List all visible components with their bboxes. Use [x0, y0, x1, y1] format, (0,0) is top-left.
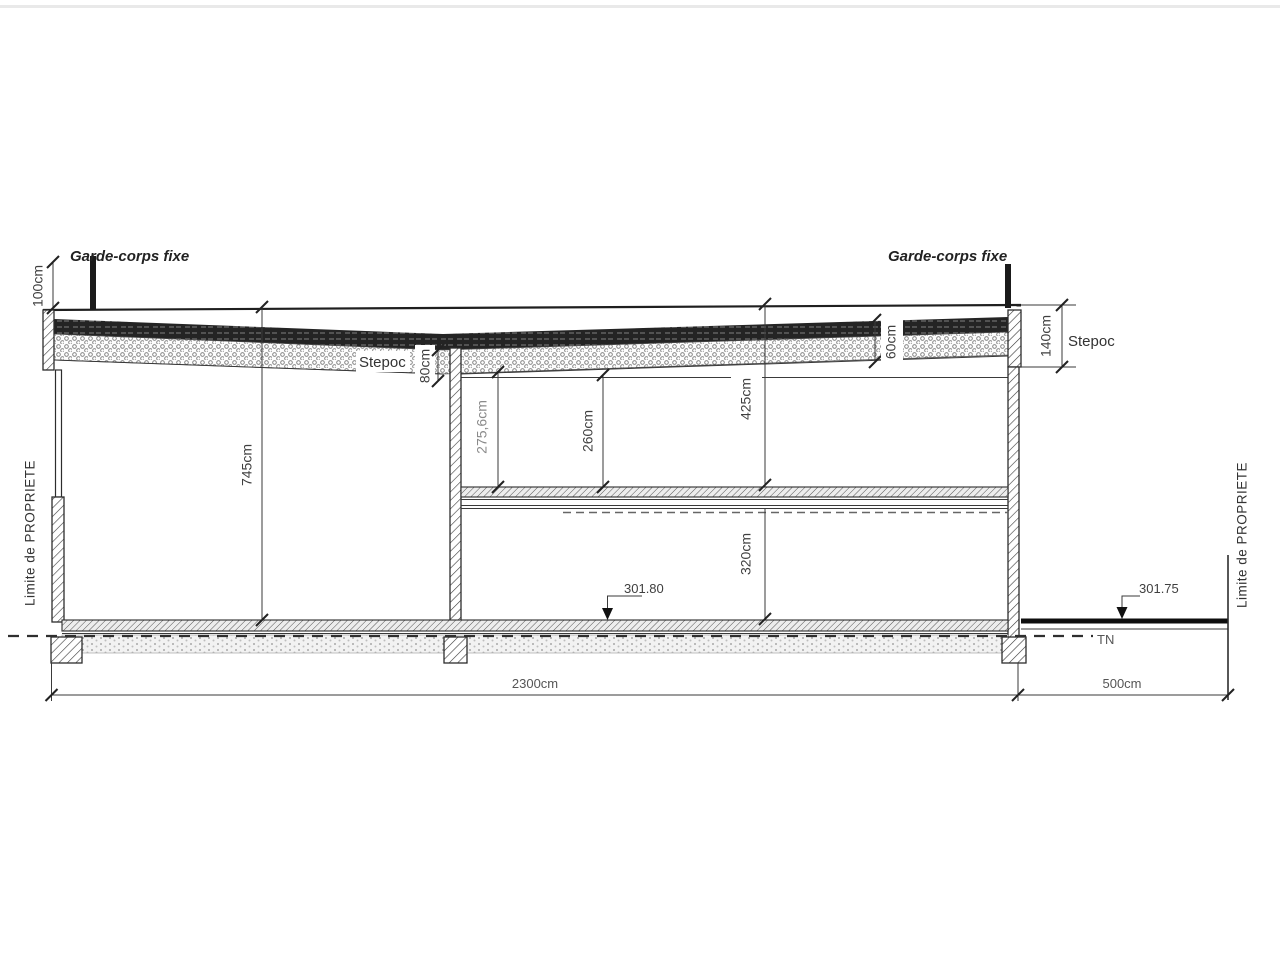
railing-post-right	[1005, 264, 1011, 308]
ground-slab-hatch	[62, 620, 1008, 631]
dim-upper-room-left: 275,6cm	[474, 366, 504, 493]
footing-right	[1002, 637, 1026, 663]
footing-middle	[444, 637, 467, 663]
dim-label-80cm: 80cm	[417, 349, 433, 383]
tn-label: TN	[1097, 632, 1114, 647]
dim-label-60cm: 60cm	[883, 325, 899, 359]
drawing-sheet: TN 100cm 745cm 80cm 275,6cm 260cm	[0, 0, 1280, 960]
elevation-marker-interior: 301.80	[602, 581, 664, 620]
terrace	[1021, 621, 1228, 629]
dim-label-140cm: 140cm	[1038, 315, 1054, 357]
stepoc-roof-label: Stepoc	[359, 354, 406, 371]
footing-left	[51, 637, 82, 663]
garde-corps-right-label: Garde-corps fixe	[888, 248, 1007, 265]
dim-label-500cm: 500cm	[1102, 676, 1141, 691]
garde-corps-left-label: Garde-corps fixe	[70, 248, 189, 265]
dim-label-2300cm: 2300cm	[512, 676, 558, 691]
dim-lower-level: 320cm	[738, 508, 771, 625]
interior-wall	[450, 348, 461, 622]
intermediate-floor-slab	[461, 487, 1008, 513]
property-limit-right-label: Limite de PROPRIETE	[1235, 462, 1250, 608]
elevation-interior-label: 301.80	[624, 581, 664, 596]
mid-slab-hatch	[461, 487, 1008, 497]
right-wall-lower	[1008, 367, 1019, 638]
parapet-top-line	[43, 305, 1021, 310]
left-parapet	[43, 310, 54, 370]
left-window	[56, 370, 62, 497]
left-wall-lower	[52, 497, 64, 622]
dim-label-745cm: 745cm	[239, 444, 255, 486]
dim-label-320cm: 320cm	[738, 533, 754, 575]
roof-assembly	[43, 305, 1021, 378]
property-limit-right: Limite de PROPRIETE	[1228, 462, 1250, 700]
elevation-marker-exterior: 301.75	[1117, 581, 1179, 619]
stepoc-wall-label: Stepoc	[1068, 333, 1115, 350]
ground-slab-gravel	[62, 635, 1008, 653]
railing-posts	[90, 256, 1011, 310]
section-drawing: TN 100cm 745cm 80cm 275,6cm 260cm	[0, 0, 1280, 960]
dim-label-100cm: 100cm	[30, 265, 46, 307]
scan-artifact	[0, 5, 1280, 8]
dim-label-425cm: 425cm	[738, 378, 754, 420]
right-wall-stepoc-top	[1008, 310, 1021, 367]
dim-railing-height: 100cm	[30, 256, 59, 314]
elevation-exterior-label: 301.75	[1139, 581, 1179, 596]
right-wall	[1008, 310, 1021, 638]
dim-label-2756cm: 275,6cm	[474, 400, 490, 454]
bottom-dimension-chain: 2300cm 500cm	[46, 663, 1235, 701]
dim-upper-room-mid: 260cm	[580, 369, 609, 493]
property-limit-left-label: Limite de PROPRIETE	[23, 460, 38, 606]
dim-label-260cm: 260cm	[580, 410, 596, 452]
